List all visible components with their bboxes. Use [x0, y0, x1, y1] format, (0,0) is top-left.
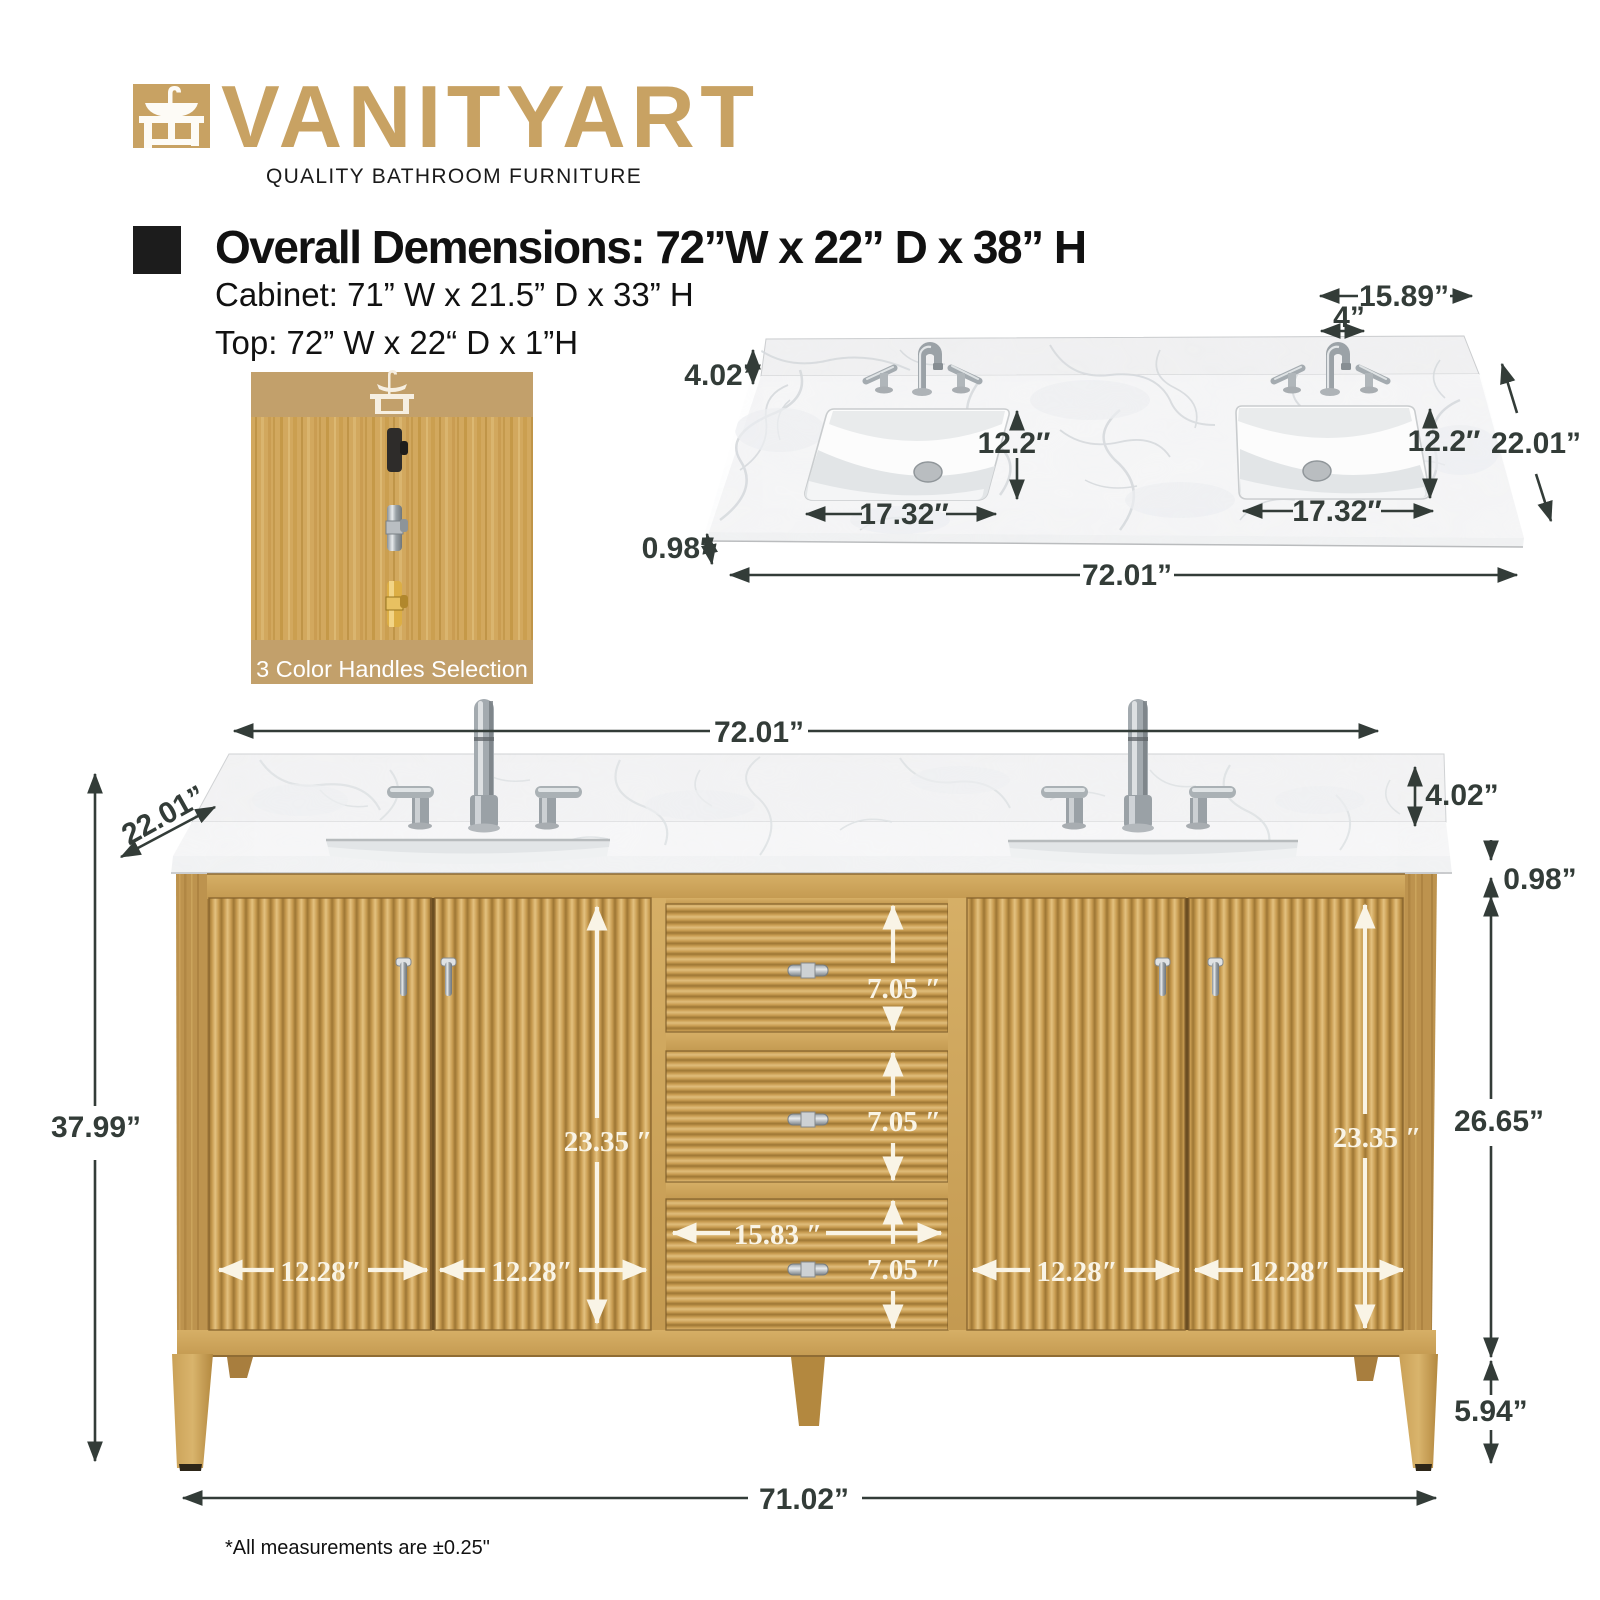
- svg-text:7.05 ″: 7.05 ″: [867, 1254, 941, 1286]
- svg-text:22.01”: 22.01”: [1491, 427, 1581, 460]
- svg-text:12.2″: 12.2″: [1408, 425, 1481, 458]
- svg-text:23.35 ″: 23.35 ″: [564, 1126, 653, 1158]
- svg-text:4.02”: 4.02”: [684, 359, 757, 392]
- svg-text:QUALITY BATHROOM FURNITURE: QUALITY BATHROOM FURNITURE: [266, 165, 642, 188]
- svg-text:0.98”: 0.98”: [1503, 863, 1576, 896]
- svg-text:15.83 ″: 15.83 ″: [734, 1219, 823, 1251]
- svg-text:12.28″: 12.28″: [1249, 1256, 1330, 1288]
- svg-text:26.65”: 26.65”: [1454, 1105, 1544, 1138]
- svg-text:4.02”: 4.02”: [1425, 779, 1498, 812]
- svg-text:*All measurements are ±0.25": *All measurements are ±0.25": [225, 1537, 490, 1559]
- svg-text:0.98″: 0.98″: [642, 532, 715, 565]
- svg-text:12.28″: 12.28″: [280, 1256, 361, 1288]
- svg-text:5.94”: 5.94”: [1454, 1395, 1527, 1428]
- svg-text:37.99”: 37.99”: [51, 1111, 141, 1144]
- svg-text:17.32″: 17.32″: [859, 498, 948, 531]
- svg-text:72.01”: 72.01”: [714, 716, 804, 749]
- svg-text:17.32″: 17.32″: [1292, 495, 1381, 528]
- svg-text:15.89”: 15.89”: [1359, 280, 1449, 313]
- svg-text:3 Color Handles Selection: 3 Color Handles Selection: [256, 656, 528, 682]
- svg-text:Overall Demensions: 72”W x 22”: Overall Demensions: 72”W x 22” D x 38” H: [215, 221, 1086, 273]
- svg-text:7.05 ″: 7.05 ″: [867, 1106, 941, 1138]
- svg-text:Top: 72” W x 22“ D x 1”H: Top: 72” W x 22“ D x 1”H: [215, 324, 578, 361]
- svg-text:12.28″: 12.28″: [1036, 1256, 1117, 1288]
- svg-text:72.01”: 72.01”: [1082, 559, 1172, 592]
- svg-text:12.28″: 12.28″: [491, 1256, 572, 1288]
- svg-text:VANITYART: VANITYART: [221, 67, 759, 166]
- svg-text:Cabinet: 71” W x 21.5” D x 33”: Cabinet: 71” W x 21.5” D x 33” H: [215, 276, 694, 313]
- svg-text:12.2″: 12.2″: [978, 427, 1051, 460]
- svg-text:23.35 ″: 23.35 ″: [1333, 1122, 1422, 1154]
- svg-text:4”: 4”: [1333, 301, 1365, 334]
- svg-text:71.02”: 71.02”: [759, 1483, 849, 1516]
- svg-text:7.05 ″: 7.05 ″: [867, 973, 941, 1005]
